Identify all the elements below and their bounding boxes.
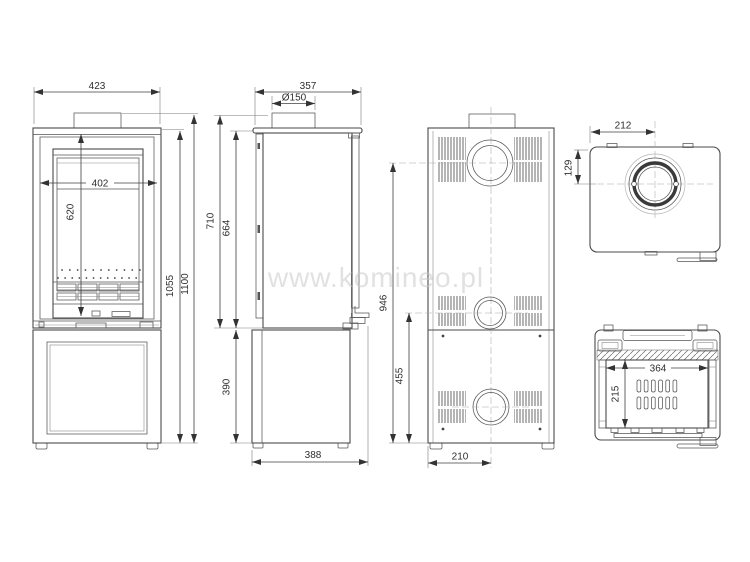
dim-label-firebox-width: 364 [650,364,667,375]
front-view: 423 402 620 1055 1100 [33,81,198,449]
dim-firebox-depth: 215 [611,360,626,428]
firebox-clamp-right [693,340,717,351]
stove-technical-drawing: 423 402 620 1055 1100 [0,0,750,562]
dim-label-flue-from-left: 212 [615,121,632,132]
side-flue-collar [272,113,315,128]
dim-side-depth: 357 [255,81,361,125]
front-base [33,330,161,443]
dim-flue-height: 946 [379,163,429,443]
firebox-shell [595,330,720,440]
firebox-handle-bar [677,444,718,448]
firebox-hatch-band [597,350,718,360]
firebox-clamp-left [598,340,622,351]
dim-base-height: 390 [222,330,253,443]
dim-label-inlet-height: 455 [395,367,406,384]
front-louver-vents [53,282,143,304]
dim-label-door-width: 402 [92,179,109,190]
dim-label-side-depth: 357 [300,81,317,92]
side-foot-rear [338,443,348,448]
front-door-latch [112,312,130,317]
dim-label-firebox-height: 664 [222,219,233,236]
dim-label-body-height: 1055 [165,274,176,297]
dim-label-total-height: 1100 [180,273,191,295]
dim-label-firebox-depth: 215 [611,385,622,402]
front-air-holes [58,270,142,278]
dim-label-glass-height: 620 [66,203,77,220]
dim-label-flue-diameter: Ø150 [282,93,307,104]
dim-flue-from-rear: 129 [564,150,597,184]
dim-label-upper-height: 710 [206,212,217,229]
dim-inlet-height: 455 [395,313,410,443]
dim-firebox-width: 364 [606,364,708,375]
rear-foot-left [430,443,442,449]
dim-label-base-depth: 388 [305,450,322,461]
dim-flue-diameter: Ø150 [272,93,315,111]
side-body [263,133,352,328]
front-junction [33,321,161,328]
dim-glass-height: 620 [66,134,82,316]
firebox-view: 364 215 [595,325,720,448]
side-top-plate [253,128,362,133]
top-handle-bracket [700,252,716,261]
dim-label-flue-from-rear: 129 [564,159,575,176]
firebox-floor-slots [637,380,677,409]
rear-foot-right [542,443,554,449]
front-base-panel [47,342,147,434]
side-base [252,330,350,443]
watermark-text: www.komineo.pl [267,262,484,293]
technical-drawing-page: 423 402 620 1055 1100 [0,0,750,562]
dim-label-front-width: 423 [89,81,106,92]
front-flue-collar [74,113,121,128]
rear-flue-collar [469,114,515,128]
side-foot-front [253,443,263,448]
dim-flue-from-left: 212 [590,121,655,144]
dim-door-width: 402 [40,179,157,190]
top-view: 212 129 [564,121,721,262]
dim-front-width: 423 [34,81,160,124]
dim-label-flue-height: 946 [379,294,390,311]
dim-firebox-height: 664 [222,131,254,328]
dim-label-center-offset: 210 [452,452,469,463]
top-handle-bar [677,258,717,262]
front-foot-right [147,443,158,449]
front-foot-left [36,443,47,449]
dim-base-depth: 388 [252,326,368,466]
dim-label-base-height: 390 [222,378,233,395]
